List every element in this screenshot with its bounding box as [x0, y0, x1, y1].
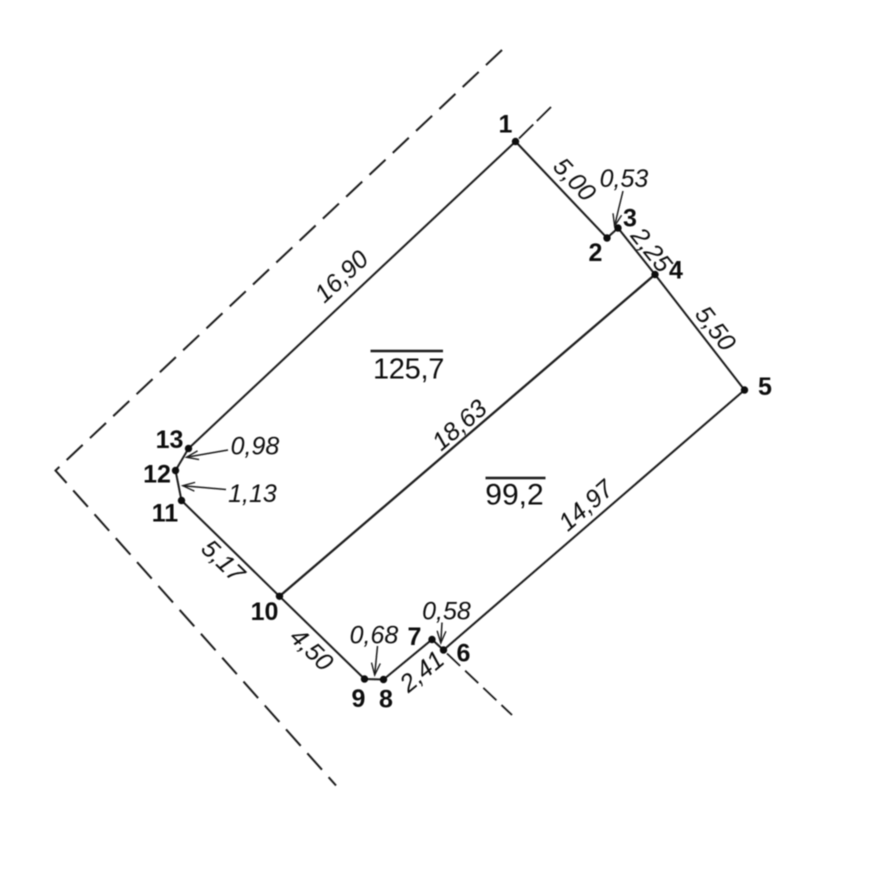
svg-text:4,50: 4,50 [284, 623, 338, 677]
svg-text:5,00: 5,00 [547, 152, 601, 207]
svg-text:99,2: 99,2 [485, 479, 543, 512]
svg-text:5: 5 [758, 373, 772, 401]
svg-text:16,90: 16,90 [309, 245, 374, 308]
svg-text:10: 10 [251, 598, 279, 626]
svg-text:9: 9 [352, 685, 366, 713]
svg-text:6: 6 [457, 640, 471, 668]
svg-text:1: 1 [499, 111, 513, 139]
svg-text:13: 13 [156, 426, 184, 454]
svg-text:0,68: 0,68 [350, 622, 399, 650]
svg-text:18,63: 18,63 [427, 394, 493, 456]
svg-text:0,53: 0,53 [600, 165, 649, 193]
svg-text:3: 3 [623, 205, 637, 233]
svg-text:0,98: 0,98 [231, 433, 280, 461]
svg-text:125,7: 125,7 [373, 354, 444, 386]
svg-text:0,58: 0,58 [422, 598, 471, 626]
svg-text:7: 7 [408, 623, 422, 651]
svg-text:2: 2 [589, 239, 603, 267]
svg-text:8: 8 [379, 686, 393, 714]
svg-text:11: 11 [152, 500, 179, 528]
svg-text:2,41: 2,41 [394, 645, 450, 698]
svg-text:5,17: 5,17 [196, 534, 251, 589]
svg-text:12: 12 [143, 461, 171, 489]
svg-text:1,13: 1,13 [228, 480, 277, 508]
